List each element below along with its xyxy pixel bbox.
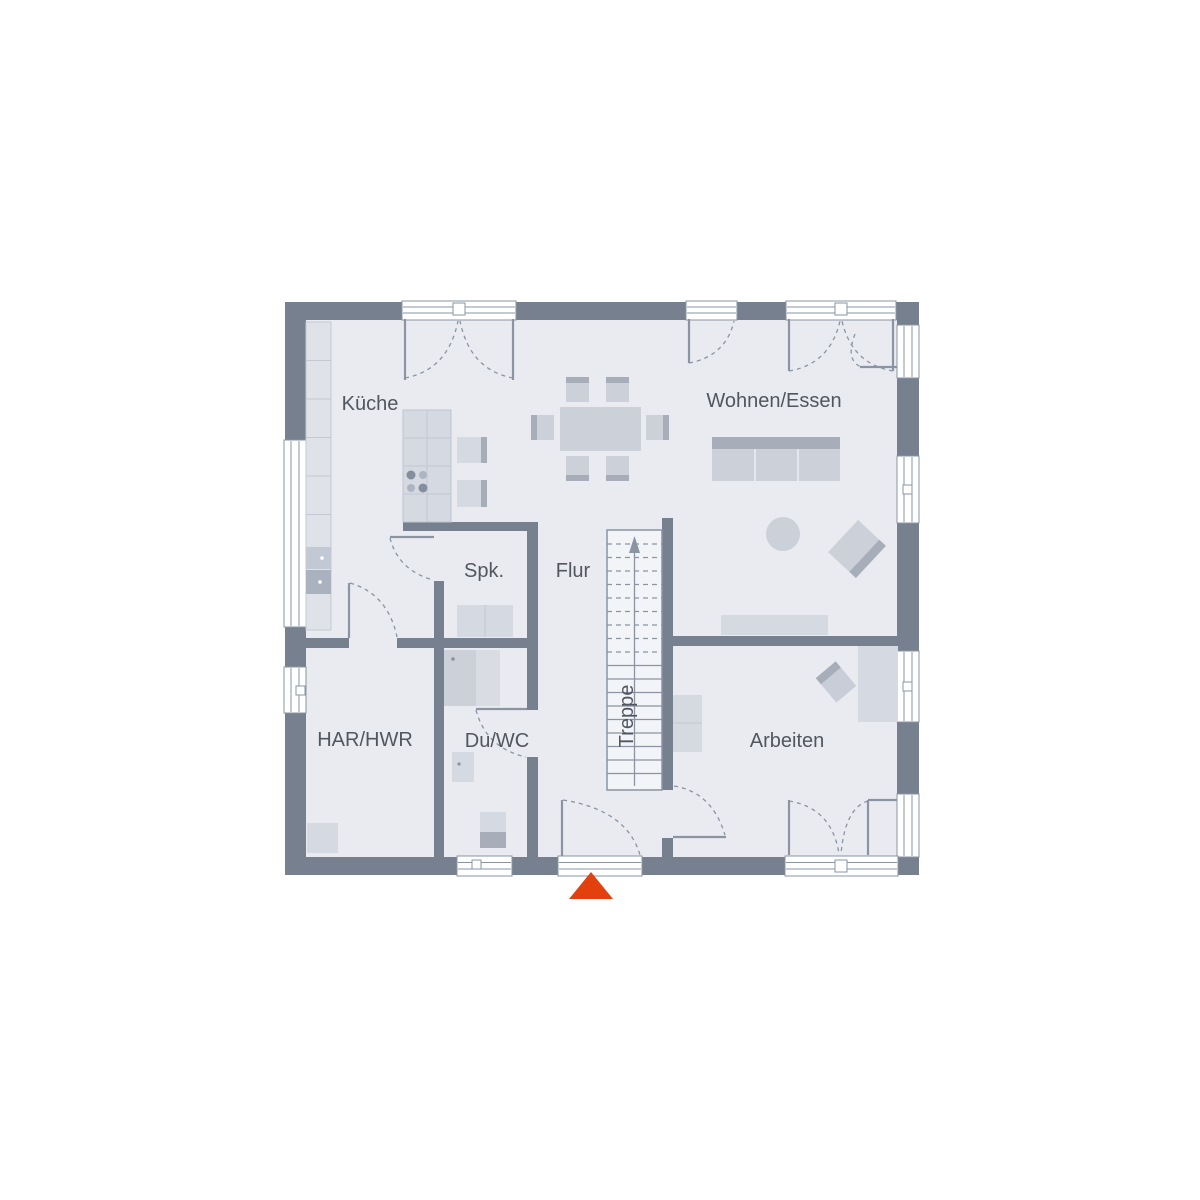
room-label-treppe: Treppe [616,685,638,748]
kitchen-appliance-sink [306,547,331,569]
french-door-kitchen-top [402,301,516,320]
window-arbeiten-right [897,651,919,722]
wall-right [897,302,919,875]
kitchen-tall-unit-stove [403,410,451,522]
wall-stairs-right [662,518,673,790]
wall-kitchen-pantry [434,581,444,648]
drain-icon [451,657,455,661]
wall-pantry-top [403,522,538,531]
coffee-table [766,517,800,551]
kitchen-cabinet [457,437,487,463]
entrance-door-bottom [558,856,642,876]
shower [444,650,500,706]
burner-icon [407,471,416,480]
window-har-left [284,667,306,713]
room-label-wohnen-essen: Wohnen/Essen [706,390,841,412]
wall-kitchen-har-right [397,638,538,648]
window-duwc-bottom [457,856,512,876]
window-wohnen-right-top [897,325,919,378]
french-door-arbeiten-bottom [785,856,898,876]
washing-machine [307,823,338,853]
dining-chair [606,377,629,402]
utility-furniture [307,823,338,853]
dining-chair [566,377,589,402]
sideboard [721,615,828,635]
dining-chair [566,456,589,481]
sink [452,752,474,782]
desk [858,646,898,722]
office-cabinet [673,695,702,752]
pantry-furniture [457,605,513,637]
dining-chair [606,456,629,481]
sofa [712,437,840,481]
stairs [607,530,662,790]
toilet [480,812,506,848]
window-kitchen-left [284,440,306,627]
window-wohnen-right [897,456,919,523]
door-wohnen-top [686,301,737,320]
window-arbeiten-right-bottom [897,794,919,857]
burner-icon [407,484,415,492]
burner-icon [419,484,428,493]
dining-table [560,407,641,451]
room-label-spk: Spk. [464,560,504,582]
wall-pantry-hall [527,522,538,710]
room-label-arbeiten: Arbeiten [750,730,825,752]
dining-chair [531,415,554,440]
wall-har-duwc [434,648,444,857]
wall-duwc-hall-lower [527,757,538,857]
burner-icon [419,471,427,479]
room-label-kueche: Küche [342,393,399,415]
floor-plan: Küche Wohnen/Essen Spk. Flur HAR/HWR Du/… [0,0,1200,1200]
room-label-flur: Flur [556,560,591,582]
dining-chair [646,415,669,440]
wall-stub-entrance [662,838,673,857]
wall-kitchen-har-left [306,638,349,648]
kitchen-cabinet [457,480,487,507]
wall-wohnen-arbeiten [673,636,897,646]
french-door-wohnen-top [786,301,896,320]
room-label-du-wc: Du/WC [465,730,529,752]
room-label-har-hwr: HAR/HWR [317,729,413,751]
